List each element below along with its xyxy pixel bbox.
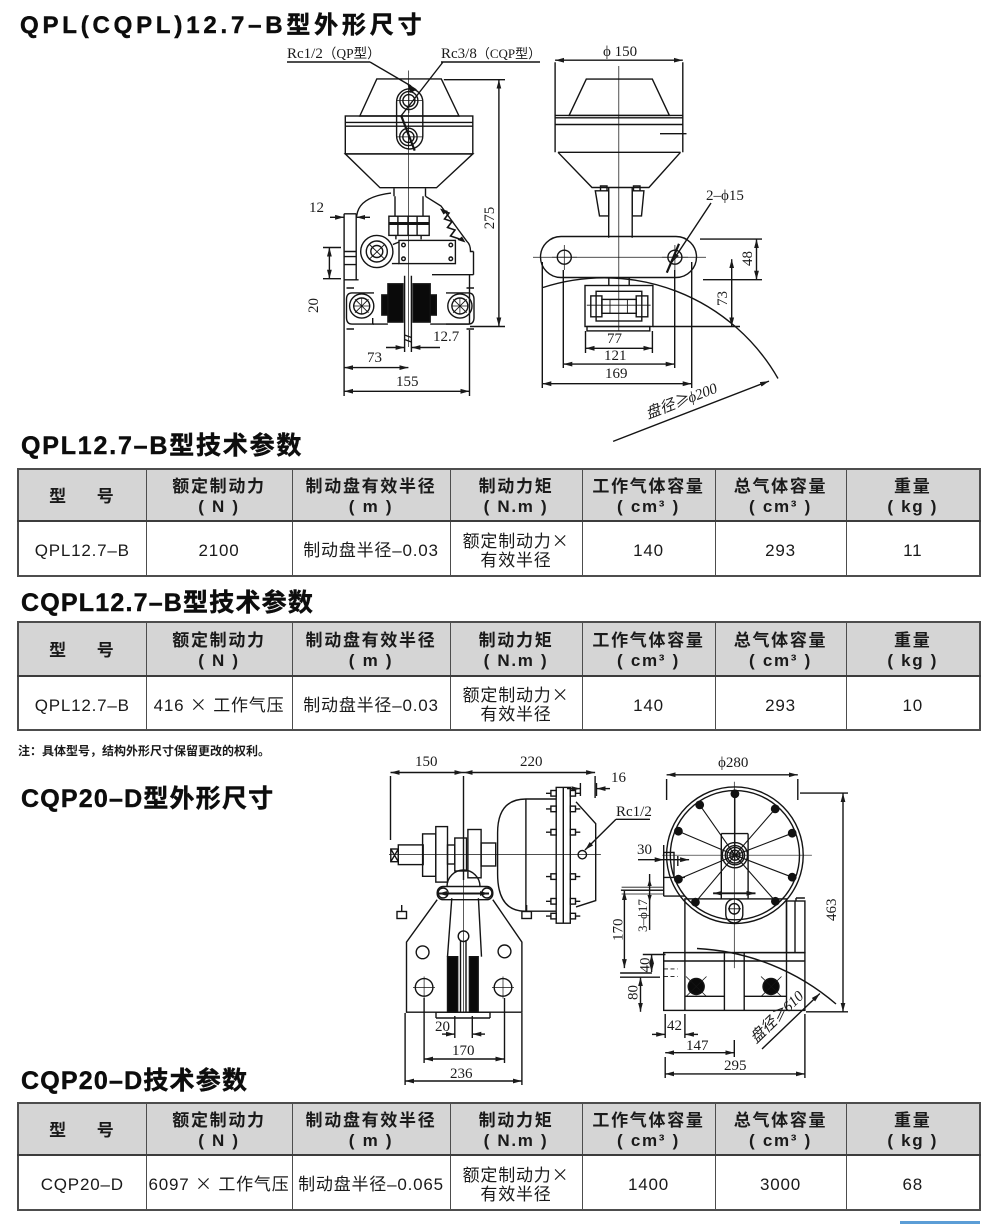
svg-text:ϕ280: ϕ280 — [718, 755, 748, 771]
svg-text:220: 220 — [520, 754, 543, 770]
svg-text:2–ϕ15: 2–ϕ15 — [706, 188, 744, 204]
svg-text:463: 463 — [824, 899, 840, 922]
svg-text:73: 73 — [715, 291, 731, 306]
svg-text:275: 275 — [482, 207, 498, 230]
svg-text:20: 20 — [435, 1019, 450, 1035]
svg-text:3–ϕ17: 3–ϕ17 — [635, 899, 650, 932]
svg-text:150: 150 — [415, 754, 438, 770]
svg-text:20: 20 — [306, 298, 322, 313]
svg-text:42: 42 — [667, 1018, 682, 1034]
svg-text:73: 73 — [367, 350, 382, 366]
svg-text:ϕ 150: ϕ 150 — [603, 44, 637, 60]
svg-text:16: 16 — [611, 770, 627, 786]
svg-text:Rc1/2: Rc1/2 — [616, 804, 652, 820]
svg-text:170: 170 — [610, 919, 626, 942]
svg-text:48: 48 — [740, 251, 756, 266]
svg-text:77: 77 — [607, 331, 623, 347]
svg-text:236: 236 — [450, 1066, 473, 1082]
svg-text:155: 155 — [396, 374, 419, 390]
svg-text:Rc1/2（QP型）: Rc1/2（QP型） — [287, 42, 381, 62]
svg-text:147: 147 — [686, 1038, 709, 1054]
svg-text:169: 169 — [605, 366, 628, 382]
svg-text:170: 170 — [452, 1043, 475, 1059]
svg-text:40: 40 — [638, 958, 654, 973]
svg-text:80: 80 — [626, 985, 642, 1000]
svg-text:30: 30 — [637, 842, 652, 858]
svg-text:12: 12 — [309, 200, 324, 216]
svg-text:Rc3/8（CQP型）: Rc3/8（CQP型） — [441, 43, 541, 62]
svg-text:12.7: 12.7 — [433, 329, 460, 345]
svg-text:295: 295 — [724, 1058, 747, 1074]
svg-text:121: 121 — [604, 348, 627, 364]
svg-text:盘径≥610: 盘径≥610 — [745, 985, 809, 1047]
